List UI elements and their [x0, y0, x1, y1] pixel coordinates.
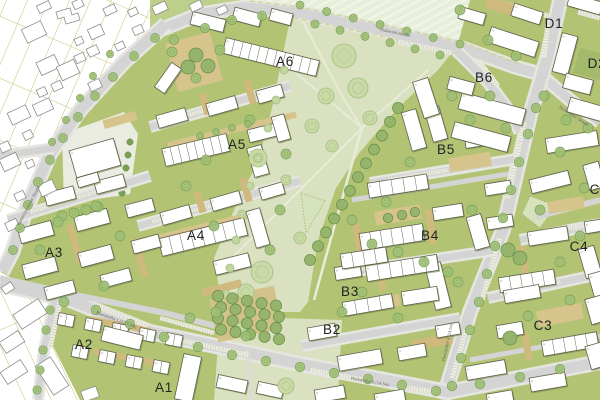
- svg-text:B4: B4: [421, 228, 439, 243]
- svg-text:B3: B3: [341, 284, 359, 299]
- svg-text:C5: C5: [590, 182, 600, 197]
- svg-text:B2: B2: [323, 322, 341, 337]
- svg-text:A5: A5: [228, 137, 246, 152]
- svg-text:B6: B6: [475, 70, 493, 85]
- svg-text:B5: B5: [437, 142, 455, 157]
- svg-text:A2: A2: [75, 337, 93, 352]
- svg-text:C3: C3: [534, 318, 553, 333]
- svg-text:A6: A6: [276, 54, 294, 69]
- svg-text:A3: A3: [45, 245, 63, 260]
- svg-text:A4: A4: [187, 228, 205, 243]
- svg-text:D2: D2: [588, 56, 600, 71]
- svg-text:C4: C4: [570, 239, 589, 254]
- svg-text:D1: D1: [545, 16, 564, 31]
- svg-text:A1: A1: [155, 380, 173, 395]
